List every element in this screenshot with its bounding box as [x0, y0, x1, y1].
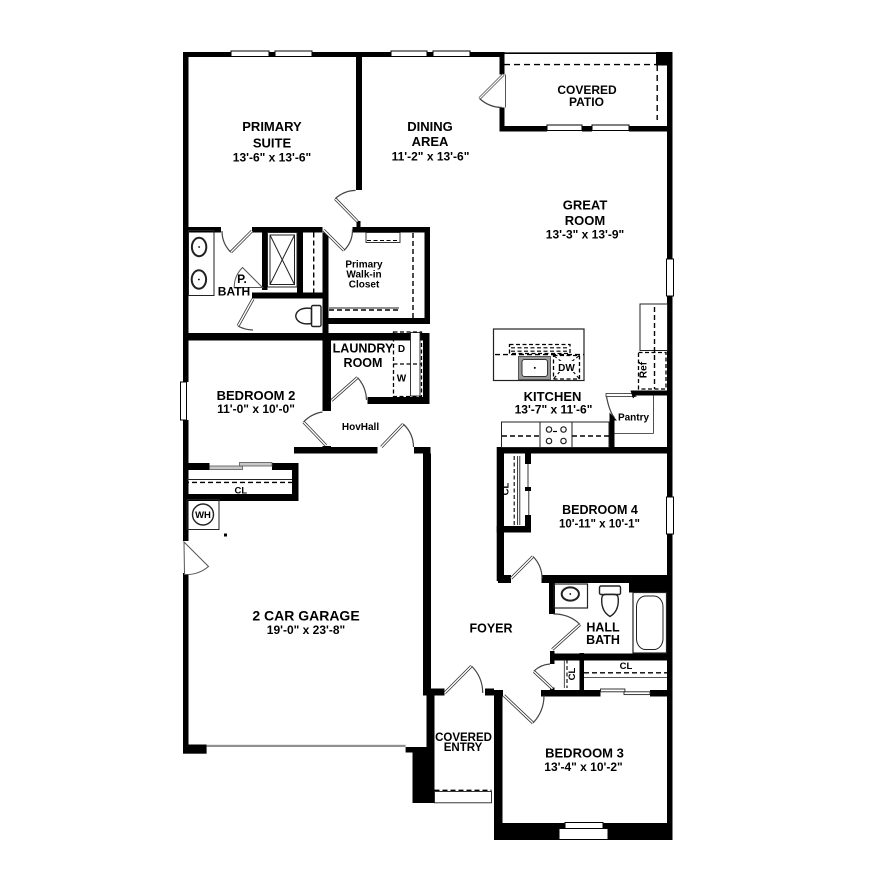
- svg-text:13'-3" x 13'-9": 13'-3" x 13'-9": [546, 228, 624, 242]
- svg-text:D: D: [398, 344, 405, 355]
- svg-text:CL: CL: [501, 482, 512, 495]
- svg-text:10'-11" x 10'-1": 10'-11" x 10'-1": [559, 519, 640, 531]
- svg-text:BATH: BATH: [586, 633, 620, 647]
- svg-text:13'-4" x 10'-2": 13'-4" x 10'-2": [544, 760, 622, 774]
- svg-text:BEDROOM 3: BEDROOM 3: [545, 746, 624, 761]
- svg-text:GREAT: GREAT: [563, 198, 608, 213]
- svg-text:ENTRY: ENTRY: [444, 742, 483, 754]
- svg-text:CL: CL: [234, 486, 247, 497]
- svg-text:2 CAR GARAGE: 2 CAR GARAGE: [252, 608, 359, 624]
- svg-text:Pantry: Pantry: [618, 413, 650, 424]
- svg-text:FOYER: FOYER: [469, 622, 512, 636]
- svg-text:DINING: DINING: [407, 119, 453, 134]
- svg-text:11'-2" x 13'-6": 11'-2" x 13'-6": [392, 150, 470, 164]
- svg-text:13'-7" x 11'-6": 13'-7" x 11'-6": [515, 403, 593, 417]
- svg-text:19'-0" x 23'-8": 19'-0" x 23'-8": [267, 623, 345, 637]
- svg-text:ROOM: ROOM: [565, 213, 605, 228]
- svg-text:ROOM: ROOM: [344, 356, 383, 370]
- svg-text:13'-6" x 13'-6": 13'-6" x 13'-6": [233, 151, 311, 165]
- svg-text:11'-0" x 10'-0": 11'-0" x 10'-0": [217, 402, 295, 416]
- svg-text:HovHall: HovHall: [342, 422, 379, 433]
- svg-text:W: W: [397, 374, 407, 385]
- svg-text:CL: CL: [620, 661, 633, 672]
- svg-text:BATH: BATH: [218, 285, 250, 299]
- svg-text:BEDROOM 4: BEDROOM 4: [562, 503, 638, 517]
- svg-text:LAUNDRY: LAUNDRY: [333, 342, 394, 356]
- svg-text:AREA: AREA: [412, 134, 449, 149]
- svg-text:Closet: Closet: [349, 280, 380, 291]
- svg-text:PATIO: PATIO: [569, 95, 604, 109]
- svg-text:CL: CL: [567, 667, 578, 680]
- svg-text:DW: DW: [558, 363, 575, 374]
- svg-text:WH: WH: [195, 510, 211, 521]
- svg-text:SUITE: SUITE: [253, 136, 292, 151]
- svg-text:Ref: Ref: [639, 361, 650, 378]
- svg-text:PRIMARY: PRIMARY: [242, 119, 302, 134]
- svg-text:BEDROOM 2: BEDROOM 2: [217, 388, 296, 403]
